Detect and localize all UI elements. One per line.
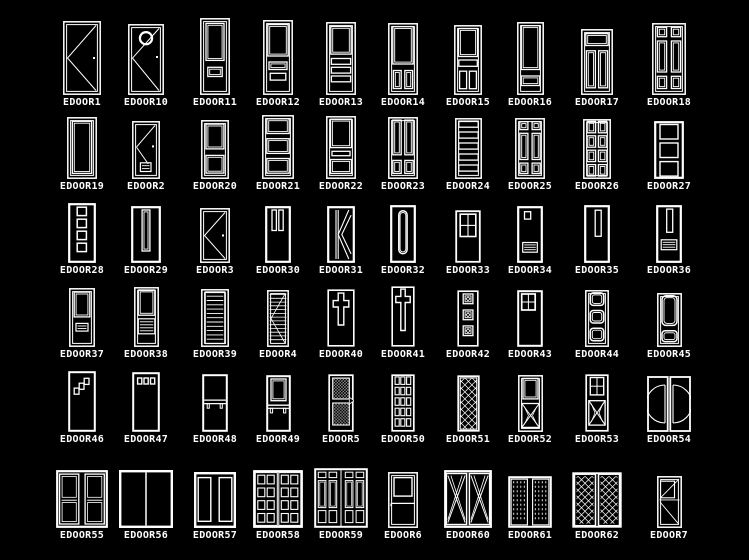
door-glyph-dbl-1pane xyxy=(194,472,236,528)
door-block-edoor44[interactable]: EDOOR44 xyxy=(562,265,632,361)
door-block-edoor15[interactable]: EDOOR15 xyxy=(433,13,503,109)
door-block-edoor25[interactable]: EDOOR25 xyxy=(495,97,565,193)
door-block-edoor27[interactable]: EDOOR27 xyxy=(634,97,704,193)
door-label: EDOOR60 xyxy=(446,530,490,542)
door-glyph-p-one xyxy=(67,117,97,179)
cad-canvas[interactable]: EDOOR1EDOOR10EDOOR11EDOOR12EDOOR13EDOOR1… xyxy=(0,0,749,560)
door-block-edoor56[interactable]: EDOOR56 xyxy=(111,446,181,542)
door-label: EDOOR61 xyxy=(508,530,552,542)
door-glyph-lattice xyxy=(457,375,480,432)
door-block-edoor46[interactable]: EDOOR46 xyxy=(47,350,117,446)
door-glyph-capsule xyxy=(390,205,416,263)
door-label: EDOOR59 xyxy=(319,530,363,542)
door-label: EDOOR56 xyxy=(124,530,168,542)
door-label: EDOOR55 xyxy=(60,530,104,542)
door-block-edoor58[interactable]: EDOOR58 xyxy=(243,446,313,542)
door-glyph-swing xyxy=(63,21,101,95)
door-block-edoor13[interactable]: EDOOR13 xyxy=(306,13,376,109)
door-block-edoor6[interactable]: EDOOR6 xyxy=(368,446,438,542)
door-block-edoor10[interactable]: EDOOR10 xyxy=(111,13,181,109)
door-block-edoor62[interactable]: EDOOR62 xyxy=(562,446,632,542)
door-glyph-p-3sq xyxy=(654,121,684,179)
door-glyph-win-cross xyxy=(455,210,481,263)
door-glyph-dbl-grid xyxy=(253,470,303,528)
door-glyph-louver-swing xyxy=(267,290,289,347)
door-block-edoor2[interactable]: EDOOR2 xyxy=(111,97,181,193)
door-block-edoor28[interactable]: EDOOR28 xyxy=(47,181,117,277)
door-block-edoor34[interactable]: EDOOR34 xyxy=(495,181,565,277)
door-glyph-bar-tabs xyxy=(202,374,228,432)
door-block-edoor38[interactable]: EDOOR38 xyxy=(111,265,181,361)
door-block-edoor47[interactable]: EDOOR47 xyxy=(111,350,181,446)
door-block-edoor26[interactable]: EDOOR26 xyxy=(562,97,632,193)
door-label: EDOOR51 xyxy=(446,434,490,446)
door-block-edoor33[interactable]: EDOOR33 xyxy=(433,181,503,277)
door-glyph-louver-full xyxy=(201,289,229,347)
door-block-edoor52[interactable]: EDOOR52 xyxy=(495,350,565,446)
door-block-edoor48[interactable]: EDOOR48 xyxy=(180,350,250,446)
door-glyph-dbl-2pane xyxy=(56,470,108,528)
door-block-edoor60[interactable]: EDOOR60 xyxy=(433,446,503,542)
door-label: EDOOR53 xyxy=(575,434,619,446)
door-block-edoor4[interactable]: EDOOR4 xyxy=(243,265,313,361)
door-block-edoor42[interactable]: EDOOR42 xyxy=(433,265,503,361)
door-glyph-p-6grid xyxy=(652,23,686,95)
door-glyph-sq4-col xyxy=(68,203,96,263)
door-glyph-k-brace xyxy=(327,206,355,263)
door-glyph-sq-louver xyxy=(517,206,543,263)
door-block-edoor1[interactable]: EDOOR1 xyxy=(47,13,117,109)
door-block-edoor20[interactable]: EDOOR20 xyxy=(180,97,250,193)
door-block-edoor40[interactable]: EDOOR40 xyxy=(306,265,376,361)
door-label: EDOOR54 xyxy=(647,434,691,446)
door-glyph-swing xyxy=(200,208,230,263)
door-glyph-sq3-row xyxy=(132,372,160,432)
door-block-edoor21[interactable]: EDOOR21 xyxy=(243,97,313,193)
door-block-edoor36[interactable]: EDOOR36 xyxy=(634,181,704,277)
door-glyph-dbl-lattice xyxy=(572,472,622,528)
door-glyph-p-5slat xyxy=(455,118,482,179)
door-block-edoor54[interactable]: EDOOR54 xyxy=(634,350,704,446)
door-glyph-p-sq-2slat xyxy=(263,20,293,95)
door-glyph-dbl-mixed xyxy=(314,468,368,528)
door-block-edoor22[interactable]: EDOOR22 xyxy=(306,97,376,193)
door-glyph-p-top-slot xyxy=(200,18,230,95)
door-glyph-win-xbox xyxy=(585,374,609,432)
door-glyph-p-3h xyxy=(262,115,294,179)
door-glyph-tall-louver xyxy=(656,205,682,263)
door-glyph-p-6grid xyxy=(515,118,545,179)
door-glyph-p-round2 xyxy=(657,293,682,347)
door-glyph-vert2-top xyxy=(265,206,291,263)
door-block-edoor55[interactable]: EDOOR55 xyxy=(47,446,117,542)
door-block-edoor31[interactable]: EDOOR31 xyxy=(306,181,376,277)
door-glyph-p-tall-slot xyxy=(517,22,544,95)
door-block-edoor18[interactable]: EDOOR18 xyxy=(634,13,704,109)
door-label: EDOOR52 xyxy=(508,434,552,446)
door-label: EDOOR57 xyxy=(193,530,237,542)
door-block-edoor24[interactable]: EDOOR24 xyxy=(433,97,503,193)
door-label: EDOOR50 xyxy=(381,434,425,446)
door-glyph-dbl-x xyxy=(444,470,492,528)
door-label: EDOOR62 xyxy=(575,530,619,542)
door-block-edoor3[interactable]: EDOOR3 xyxy=(180,181,250,277)
door-glyph-p-sq-slat-2vert xyxy=(454,25,482,95)
door-block-edoor61[interactable]: EDOOR61 xyxy=(495,446,565,542)
door-label: EDOOR5 xyxy=(322,434,360,446)
door-block-edoor53[interactable]: EDOOR53 xyxy=(562,350,632,446)
door-label: EDOOR58 xyxy=(256,530,300,542)
door-glyph-dbl-arc xyxy=(647,376,691,432)
door-glyph-tall-narrow-hi xyxy=(584,205,610,263)
door-block-edoor57[interactable]: EDOOR57 xyxy=(180,446,250,542)
door-block-edoor30[interactable]: EDOOR30 xyxy=(243,181,313,277)
door-block-edoor50[interactable]: EDOOR50 xyxy=(368,350,438,446)
door-glyph-p-sq-slat-h xyxy=(326,116,356,179)
door-block-edoor51[interactable]: EDOOR51 xyxy=(433,350,503,446)
door-label: EDOOR46 xyxy=(60,434,104,446)
door-block-edoor37[interactable]: EDOOR37 xyxy=(47,265,117,361)
door-glyph-p-2tall-2small xyxy=(388,117,418,179)
door-glyph-p-sq-louver xyxy=(134,287,159,347)
door-block-edoor17[interactable]: EDOOR17 xyxy=(562,13,632,109)
door-block-edoor14[interactable]: EDOOR14 xyxy=(368,13,438,109)
door-glyph-win-diag xyxy=(657,476,682,528)
door-block-edoor32[interactable]: EDOOR32 xyxy=(368,181,438,277)
door-block-edoor35[interactable]: EDOOR35 xyxy=(562,181,632,277)
door-label: EDOOR6 xyxy=(384,530,422,542)
door-block-edoor41[interactable]: EDOOR41 xyxy=(368,265,438,361)
door-glyph-dbl-plain xyxy=(119,470,173,528)
door-label: EDOOR48 xyxy=(193,434,237,446)
door-glyph-cross-tall xyxy=(391,286,415,347)
door-glyph-sq3-stair xyxy=(68,371,96,432)
door-glyph-p-sq-3slat xyxy=(326,22,356,95)
door-glyph-p-sq-louver-sm xyxy=(69,288,95,347)
door-block-edoor59[interactable]: EDOOR59 xyxy=(306,446,376,542)
door-glyph-swing-louver xyxy=(132,121,160,179)
door-block-edoor7[interactable]: EDOOR7 xyxy=(634,446,704,542)
door-glyph-p-sq-2vert xyxy=(388,23,418,95)
door-label: EDOOR47 xyxy=(124,434,168,446)
door-block-edoor11[interactable]: EDOOR11 xyxy=(180,13,250,109)
door-glyph-p-8grid xyxy=(583,119,611,179)
door-glyph-sq3-dec xyxy=(457,290,479,347)
door-block-edoor39[interactable]: EDOOR39 xyxy=(180,265,250,361)
door-glyph-swing-circle xyxy=(128,24,164,95)
door-label: EDOOR49 xyxy=(256,434,300,446)
door-block-edoor16[interactable]: EDOOR16 xyxy=(495,13,565,109)
door-label: EDOOR7 xyxy=(650,530,688,542)
door-block-edoor5[interactable]: EDOOR5 xyxy=(306,350,376,446)
door-block-edoor19[interactable]: EDOOR19 xyxy=(47,97,117,193)
door-glyph-win-bar-tabs xyxy=(266,375,291,432)
door-glyph-tall-narrow xyxy=(131,206,161,263)
door-glyph-p-two xyxy=(201,120,229,179)
door-block-edoor12[interactable]: EDOOR12 xyxy=(243,13,313,109)
door-block-edoor49[interactable]: EDOOR49 xyxy=(243,350,313,446)
door-glyph-win-2x2 xyxy=(517,290,543,347)
door-glyph-dbl-dashed xyxy=(508,476,552,528)
door-glyph-glass-swing xyxy=(328,374,354,432)
door-glyph-win-bar xyxy=(388,472,418,528)
door-glyph-cross xyxy=(327,289,355,347)
door-glyph-p-3round xyxy=(585,290,609,347)
door-glyph-grid-5x3 xyxy=(391,374,415,432)
door-block-edoor29[interactable]: EDOOR29 xyxy=(111,181,181,277)
door-block-edoor45[interactable]: EDOOR45 xyxy=(634,265,704,361)
door-block-edoor43[interactable]: EDOOR43 xyxy=(495,265,565,361)
door-block-edoor23[interactable]: EDOOR23 xyxy=(368,97,438,193)
door-glyph-p-top-2tall xyxy=(581,29,613,95)
door-glyph-p-xbox xyxy=(518,375,543,432)
